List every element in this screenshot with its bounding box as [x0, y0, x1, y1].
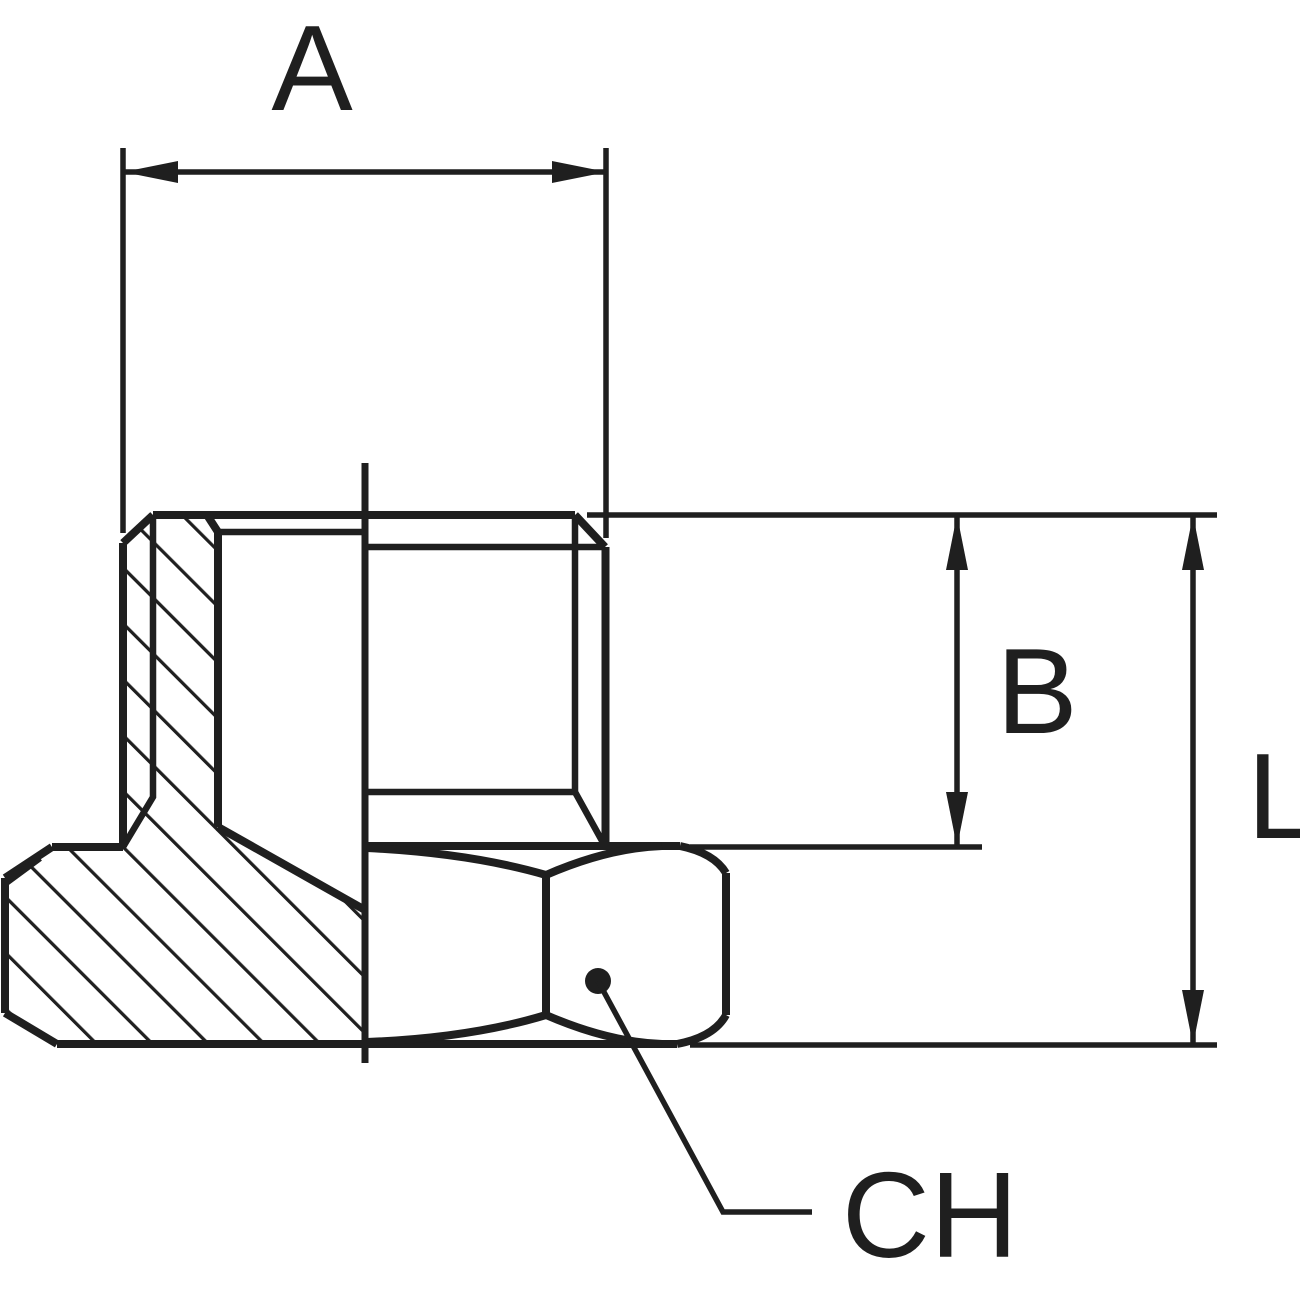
- dim-a-label: A: [271, 0, 353, 136]
- technical-drawing-page: A B L CH: [0, 0, 1300, 1300]
- dim-b-label: B: [996, 623, 1077, 759]
- dim-l-label: L: [1247, 728, 1300, 864]
- fitting-half-section-drawing: A B L CH: [0, 0, 1300, 1300]
- ch-label: CH: [842, 1147, 1018, 1283]
